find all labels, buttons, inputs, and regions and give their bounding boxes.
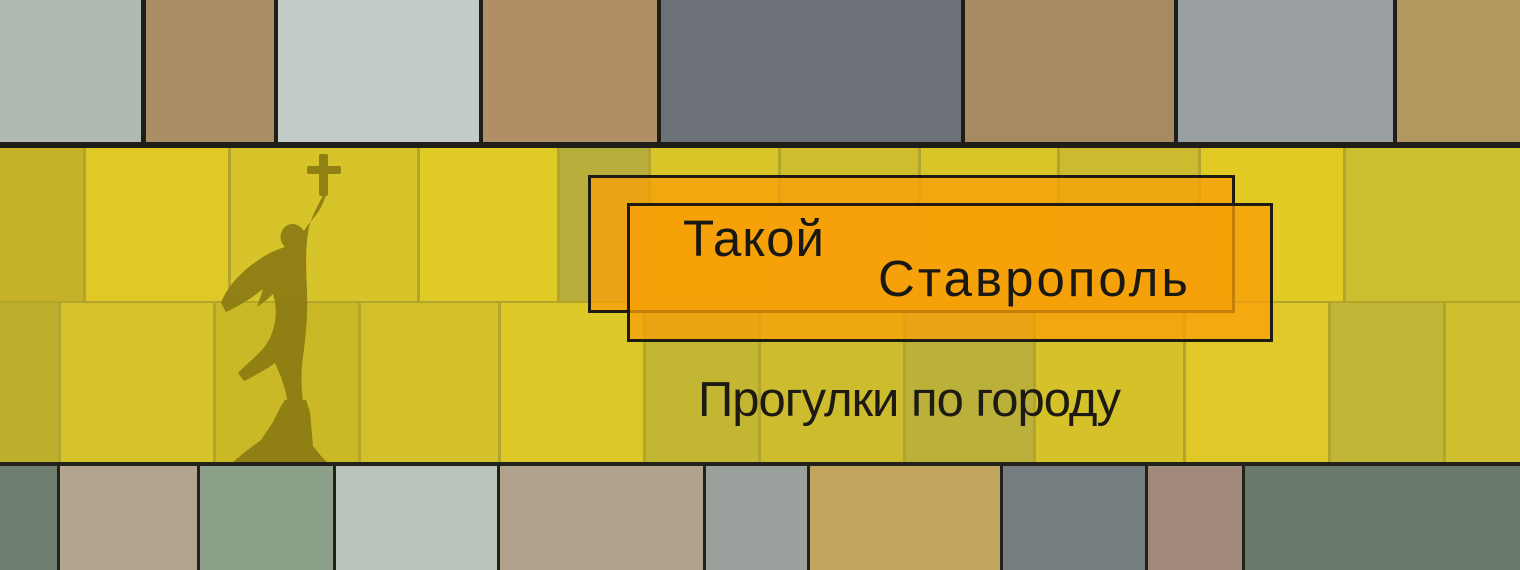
paving-brick (706, 466, 807, 570)
paving-brick (420, 148, 557, 301)
paving-brick (1446, 303, 1520, 462)
paving-brick (60, 466, 197, 570)
paving-top-row (0, 0, 1520, 148)
title-line1: Такой (683, 213, 825, 264)
paving-brick (1148, 466, 1242, 570)
paving-brick (336, 466, 497, 570)
paving-brick (0, 148, 83, 301)
paving-brick (278, 0, 479, 142)
paving-bottom-row (0, 462, 1520, 570)
paving-brick (0, 303, 58, 462)
paving-brick (200, 466, 333, 570)
paving-brick (483, 0, 657, 142)
paving-brick (1245, 466, 1520, 570)
paving-brick (1346, 148, 1520, 301)
title-line2: Ставрополь (878, 253, 1191, 304)
paving-brick (0, 0, 141, 142)
subtitle: Прогулки по городу (698, 376, 1120, 425)
paving-brick (501, 303, 643, 462)
paving-brick (1003, 466, 1145, 570)
paving-brick (810, 466, 1000, 570)
paving-brick (500, 466, 703, 570)
paving-brick (0, 466, 57, 570)
paving-brick (61, 303, 213, 462)
paving-brick (661, 0, 961, 142)
banner-root: { "banner": { "title_line1": "Такой", "t… (0, 0, 1520, 570)
angel-statue-silhouette-icon (205, 150, 345, 462)
paving-brick (146, 0, 274, 142)
paving-brick (361, 303, 498, 462)
paving-brick (965, 0, 1174, 142)
paving-brick (1397, 0, 1520, 142)
paving-brick (1331, 303, 1443, 462)
paving-brick (1178, 0, 1393, 142)
